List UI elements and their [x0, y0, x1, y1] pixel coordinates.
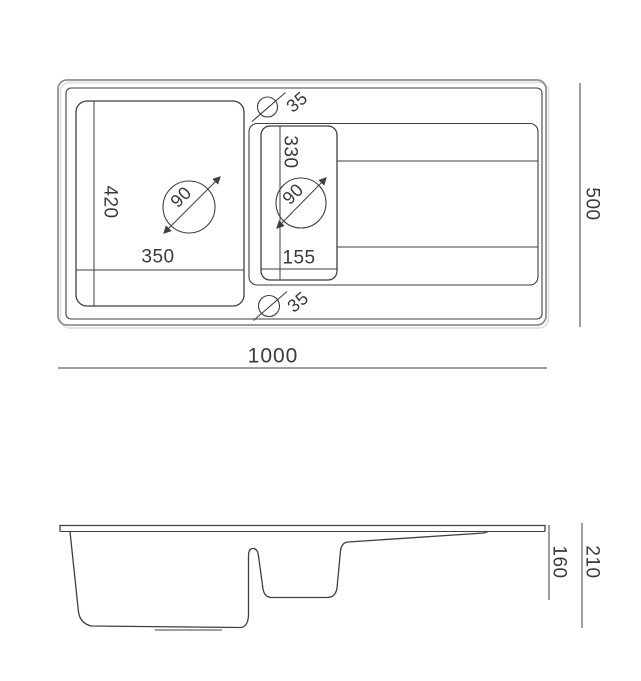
bowl-depth-label: 160: [549, 545, 570, 578]
section-rim-top: [60, 526, 545, 532]
overall-depth-label: 500: [582, 187, 603, 220]
tap-hole-symbol-bottom: 35: [254, 288, 313, 321]
outer-edge-shadow: [61, 83, 549, 329]
sink-top-view: 35 35 420 350 90 330 155 90 500: [58, 80, 603, 368]
main-bowl-length-label: 420: [100, 185, 121, 218]
half-bowl-width-label: 155: [282, 248, 315, 269]
tap-hole-bottom-label: 35: [284, 288, 313, 317]
tap-hole-top-label: 35: [283, 88, 312, 117]
rim-inner-edge: [66, 88, 542, 319]
main-bowl-drain-circle: [163, 181, 215, 233]
technical-drawing: 35 35 420 350 90 330 155 90 500: [0, 0, 641, 681]
overall-depth-dimension: 500: [580, 83, 603, 327]
overall-width-label: 1000: [248, 345, 299, 368]
main-bowl-drain-diameter-line: [164, 177, 220, 233]
overall-height-dimension: 210: [582, 523, 603, 628]
overall-width-dimension: 1000: [58, 345, 547, 369]
section-bowl-profile: [70, 532, 488, 628]
main-bowl-width-label: 350: [141, 247, 174, 268]
sink-section-view: 160 210: [60, 523, 603, 630]
tap-hole-symbol-top: 35: [252, 88, 311, 122]
main-bowl-drain-diameter-label: 90: [166, 182, 195, 211]
bowl-depth-dimension: 160: [549, 525, 570, 600]
half-bowl-drain-diameter-label: 90: [278, 179, 307, 208]
sink-dimension-drawing: 35 35 420 350 90 330 155 90 500: [0, 0, 641, 681]
half-bowl-length-label: 330: [280, 135, 301, 168]
overall-height-label: 210: [582, 545, 603, 578]
